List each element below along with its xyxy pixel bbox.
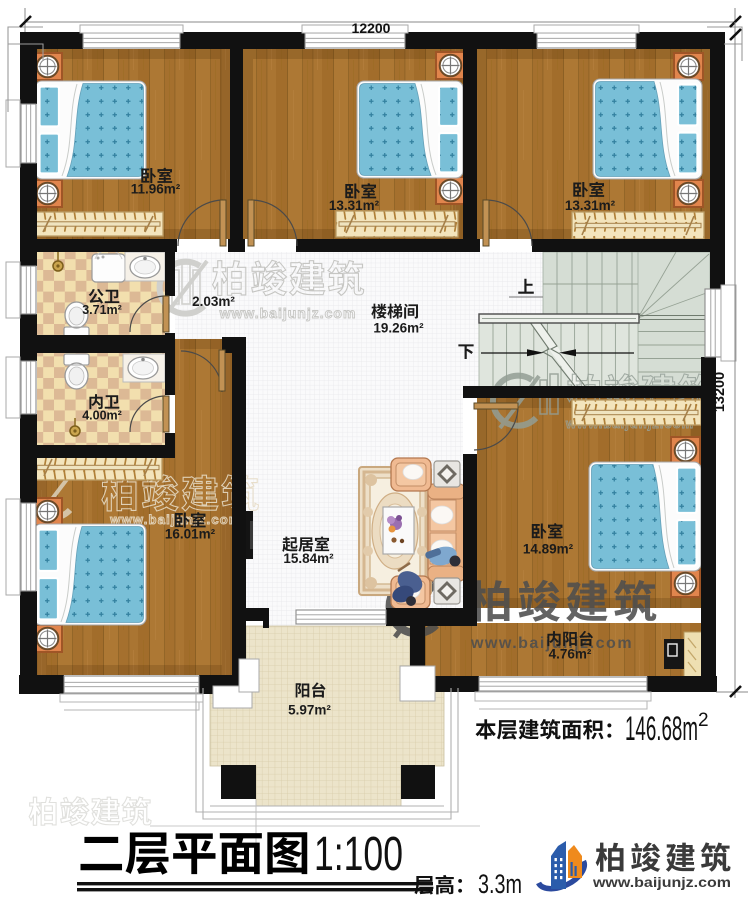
svg-text:146.68m: 146.68m	[625, 710, 698, 748]
svg-text:11.96m²: 11.96m²	[131, 182, 181, 197]
svg-text:2: 2	[698, 710, 709, 731]
svg-text:www.baijunjz.com: www.baijunjz.com	[592, 874, 731, 890]
svg-text:19.26m²: 19.26m²	[373, 321, 424, 336]
svg-text:3.71m²: 3.71m²	[82, 303, 122, 317]
svg-text:www.baijunjz.com: www.baijunjz.com	[219, 305, 357, 321]
svg-text:13200: 13200	[712, 372, 728, 412]
svg-text:2.03m²: 2.03m²	[192, 294, 235, 309]
svg-text:13.31m²: 13.31m²	[565, 198, 616, 213]
svg-text:16.01m²: 16.01m²	[165, 527, 216, 542]
svg-text:4.76m²: 4.76m²	[549, 647, 592, 662]
svg-text:4.00m²: 4.00m²	[82, 409, 122, 423]
svg-text:3.3m: 3.3m	[478, 869, 522, 899]
svg-text:13.31m²: 13.31m²	[329, 198, 380, 213]
svg-text:14.89m²: 14.89m²	[523, 542, 574, 557]
svg-text:5.97m²: 5.97m²	[288, 703, 331, 718]
svg-text:15.84m²: 15.84m²	[283, 551, 334, 566]
svg-text:1:100: 1:100	[314, 828, 403, 881]
svg-text:12200: 12200	[352, 20, 391, 36]
